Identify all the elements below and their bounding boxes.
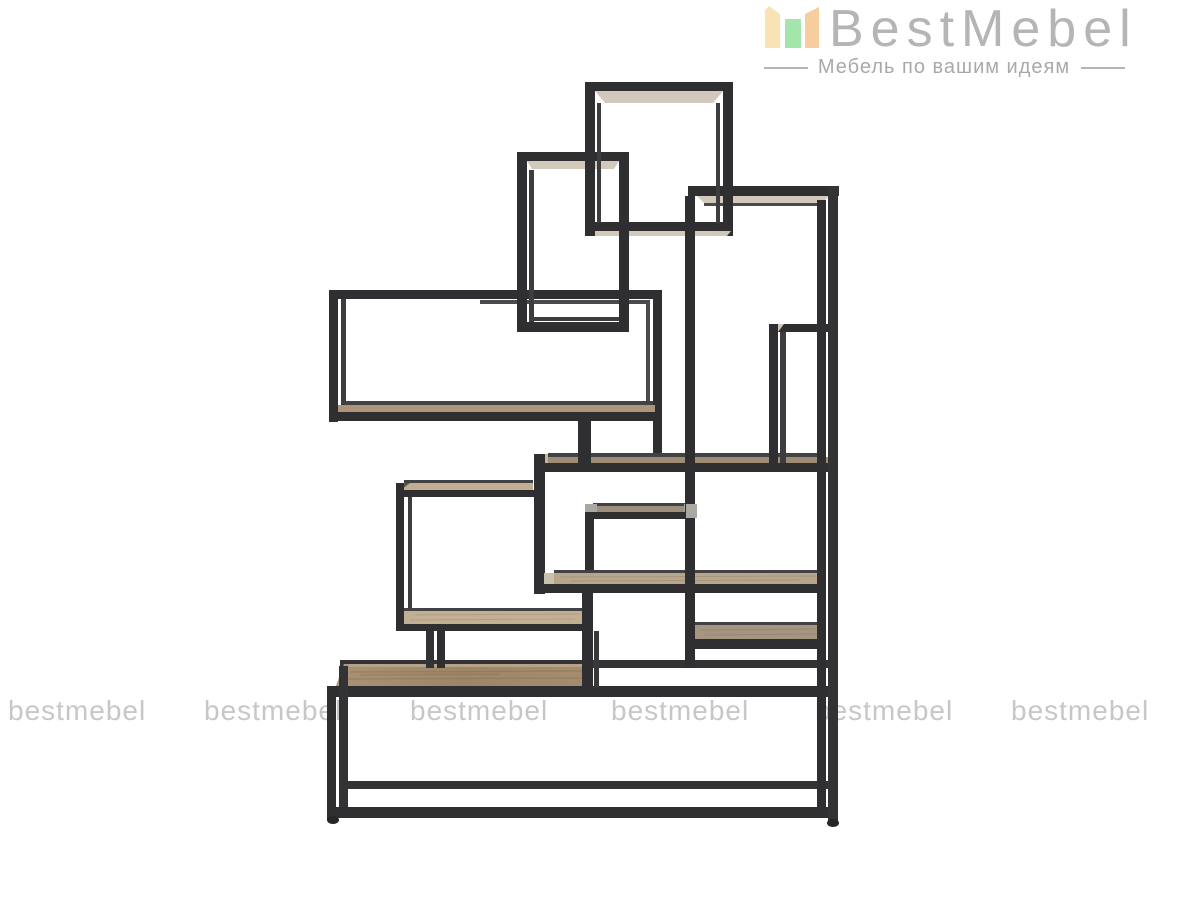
svg-text:bestmebel: bestmebel [410,695,548,726]
svg-text:bestmebel: bestmebel [1011,695,1149,726]
svg-text:bestmebel: bestmebel [204,695,342,726]
svg-text:bestmebel: bestmebel [611,695,749,726]
svg-text:bestmebel: bestmebel [8,695,146,726]
svg-text:Мебель по вашим идеям: Мебель по вашим идеям [818,56,1070,78]
svg-text:BestMebel: BestMebel [829,0,1138,58]
